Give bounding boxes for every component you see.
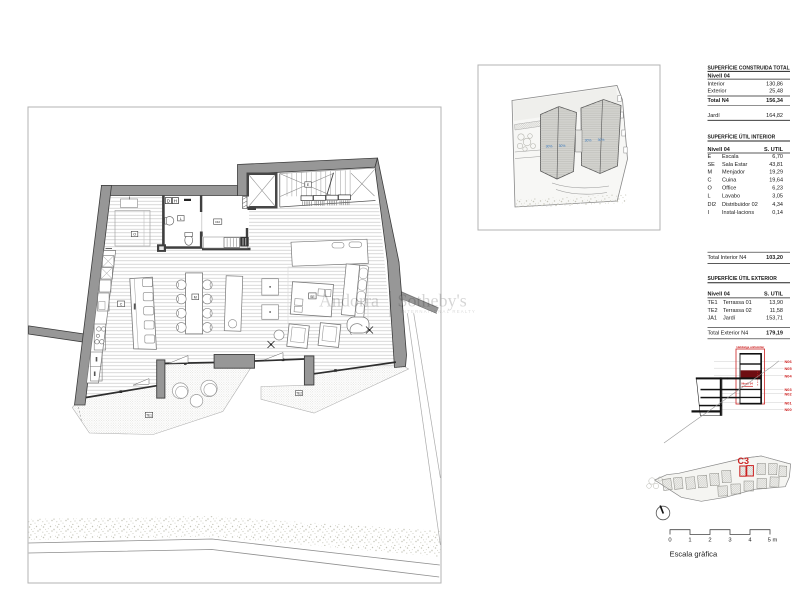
svg-text:11,58: 11,58 [770, 308, 783, 314]
svg-text:E: E [708, 154, 712, 160]
svg-text:Instal·lacions: Instal·lacions [722, 210, 754, 216]
svg-text:D: D [167, 198, 170, 203]
svg-text:TE2: TE2 [296, 392, 302, 396]
svg-text:S. UTIL: S. UTIL [764, 292, 784, 298]
svg-text:INTERNATIONAL REALTY: INTERNATIONAL REALTY [401, 309, 477, 314]
svg-text:6,70: 6,70 [772, 154, 783, 160]
svg-text:C: C [120, 303, 123, 307]
svg-text:Terrassa 01: Terrassa 01 [723, 300, 752, 306]
svg-text:N05: N05 [785, 366, 793, 371]
svg-text:SUPERFÍCIE ÚTIL INTERIOR: SUPERFÍCIE ÚTIL INTERIOR [708, 132, 776, 140]
svg-text:Sala Estar: Sala Estar [722, 162, 748, 168]
svg-text:DI2: DI2 [708, 202, 717, 208]
svg-text:N02: N02 [785, 391, 793, 396]
svg-text:3: 3 [728, 538, 731, 544]
svg-text:130,86: 130,86 [766, 82, 783, 88]
svg-text:N06: N06 [785, 359, 793, 364]
svg-text:Total Exterior N4: Total Exterior N4 [708, 331, 749, 337]
svg-text:2: 2 [708, 538, 711, 544]
svg-text:Escala: Escala [722, 154, 739, 160]
svg-text:L: L [180, 217, 182, 221]
svg-text:156,34: 156,34 [766, 98, 784, 104]
svg-text:3,05: 3,05 [772, 194, 783, 200]
svg-text:103,20: 103,20 [766, 255, 783, 261]
svg-text:Total N4: Total N4 [708, 98, 730, 104]
svg-text:0: 0 [668, 538, 671, 544]
svg-text:C3: C3 [738, 456, 750, 466]
svg-text:TE1: TE1 [708, 300, 718, 306]
svg-text:4: 4 [748, 538, 752, 544]
svg-text:Nivell 04: Nivell 04 [708, 74, 731, 80]
svg-text:Jardí: Jardí [708, 113, 721, 119]
svg-text:TE1: TE1 [146, 413, 152, 417]
svg-text:TE2: TE2 [708, 308, 718, 314]
svg-text:O: O [708, 186, 713, 192]
svg-text:N04: N04 [785, 373, 793, 378]
svg-text:N01: N01 [785, 400, 793, 405]
svg-text:30%: 30% [546, 145, 553, 149]
svg-text:Interior: Interior [708, 82, 725, 88]
svg-text:Exterior: Exterior [708, 89, 727, 95]
svg-text:Distribuïdor 02: Distribuïdor 02 [722, 202, 758, 208]
svg-text:Total Interior N4: Total Interior N4 [708, 255, 747, 261]
svg-text:SE: SE [708, 162, 716, 168]
svg-text:Office: Office [722, 186, 736, 192]
svg-text:6,23: 6,23 [772, 186, 783, 192]
svg-text:I: I [708, 210, 710, 216]
svg-text:SUPERFÍCIE CONSTRUIDA TOTAL: SUPERFÍCIE CONSTRUIDA TOTAL [708, 63, 790, 71]
svg-text:Andorra: Andorra [319, 291, 379, 311]
svg-text:S. UTIL: S. UTIL [764, 147, 784, 153]
svg-text:4,34: 4,34 [772, 202, 783, 208]
svg-text:O: O [133, 233, 136, 237]
svg-text:C: C [708, 178, 712, 184]
svg-text:30%: 30% [559, 144, 566, 148]
svg-text:Menjador: Menjador [722, 170, 745, 176]
svg-text:M: M [194, 296, 197, 300]
svg-text:1: 1 [688, 538, 691, 544]
svg-text:L: L [708, 194, 711, 200]
svg-text:N00: N00 [785, 407, 792, 412]
svg-text:H: H [174, 198, 177, 203]
svg-text:SE: SE [310, 295, 315, 299]
svg-text:179,19: 179,19 [766, 331, 783, 337]
svg-text:SUPERFÍCIE ÚTIL EXTERIOR: SUPERFÍCIE ÚTIL EXTERIOR [708, 274, 778, 282]
svg-text:Cuina: Cuina [722, 178, 737, 184]
svg-text:M: M [708, 170, 713, 176]
svg-text:Nivell 04: Nivell 04 [708, 292, 731, 298]
svg-text:25,48: 25,48 [769, 89, 783, 95]
svg-text:13,90: 13,90 [769, 300, 783, 306]
svg-text:19,64: 19,64 [769, 178, 783, 184]
svg-text:Terrassa 02: Terrassa 02 [723, 308, 752, 314]
svg-text:43,81: 43,81 [769, 162, 783, 168]
svg-text:30%: 30% [585, 139, 592, 143]
svg-text:Sotheby's: Sotheby's [398, 291, 467, 311]
svg-text:Jardí: Jardí [723, 315, 736, 321]
svg-text:19,29: 19,29 [769, 170, 783, 176]
svg-text:30%: 30% [598, 138, 605, 142]
svg-text:JA1: JA1 [708, 315, 717, 321]
svg-text:Lavabo: Lavabo [722, 194, 740, 200]
svg-text:Nivell 04: Nivell 04 [708, 147, 731, 153]
svg-text:0,14: 0,14 [772, 210, 783, 216]
svg-text:Escala gràfica: Escala gràfica [670, 550, 718, 559]
svg-text:DI2: DI2 [215, 220, 220, 224]
svg-text:153,71: 153,71 [766, 315, 783, 321]
svg-text:164,82: 164,82 [766, 113, 783, 119]
svg-text:5 m: 5 m [768, 538, 778, 544]
svg-text:Habitatge unifamiliar: Habitatge unifamiliar [737, 345, 766, 349]
